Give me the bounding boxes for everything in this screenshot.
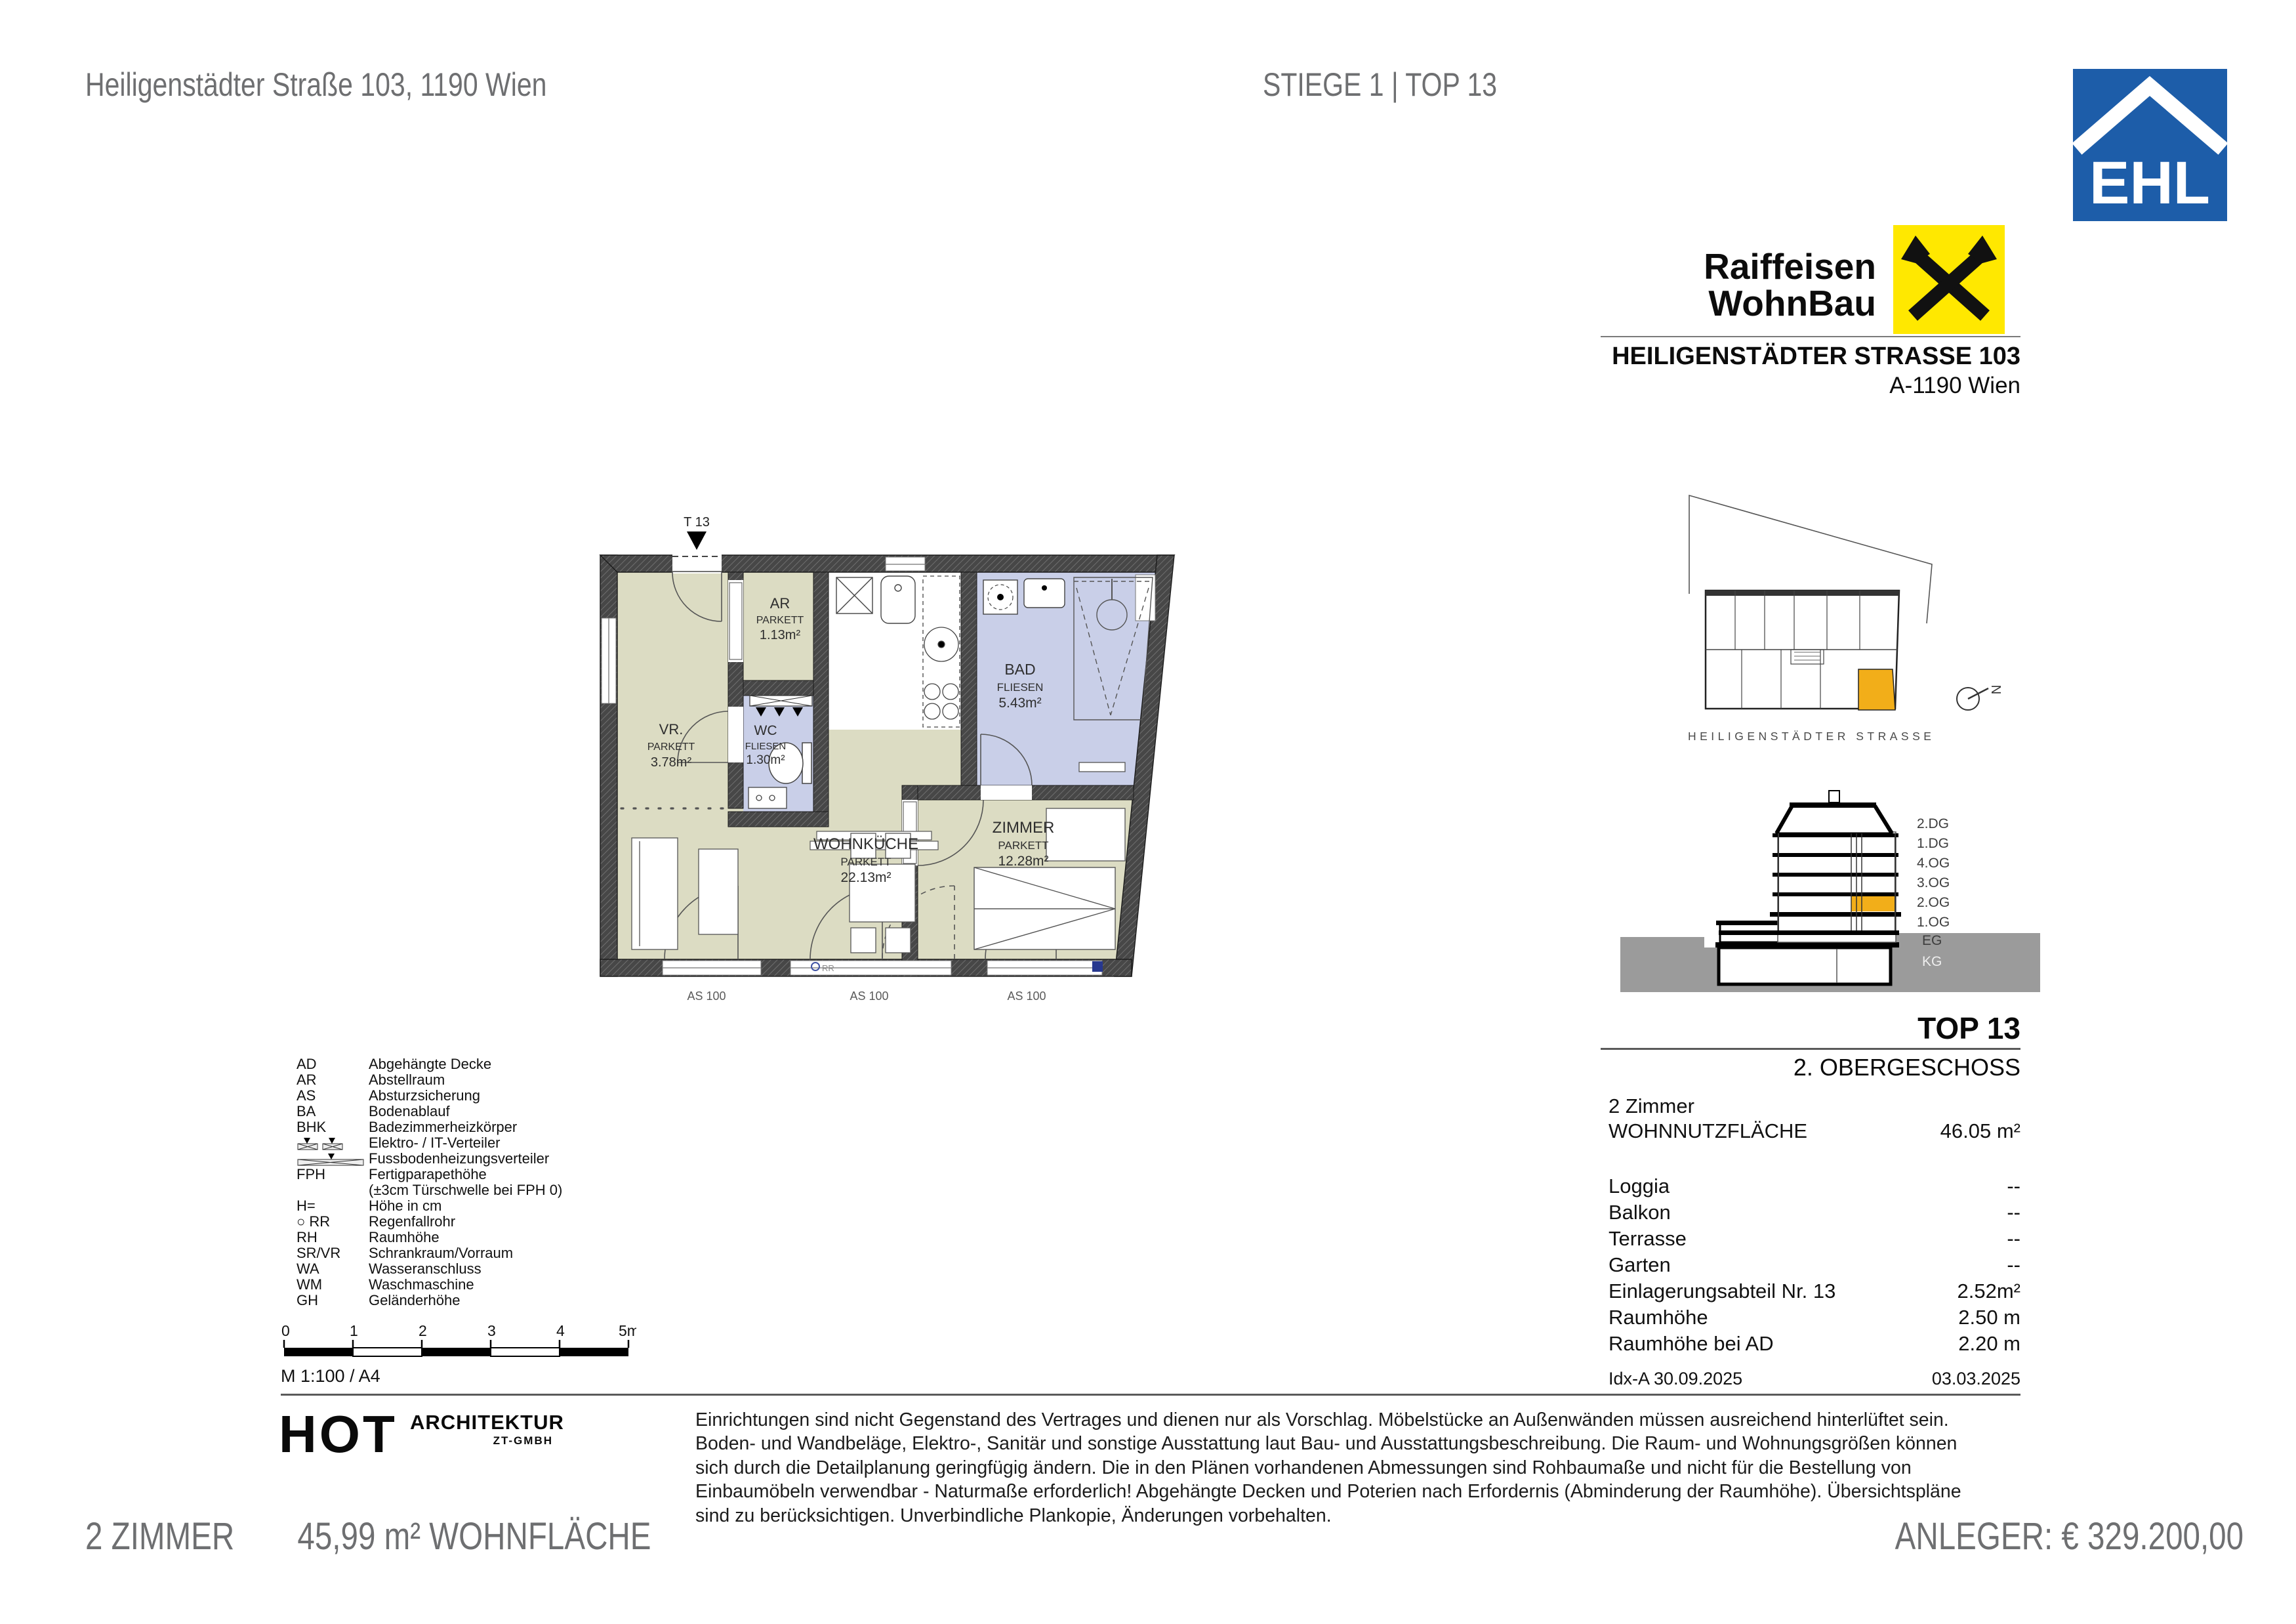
row-value: 2.50 m [1958, 1306, 2020, 1329]
entrance-arrow-icon [687, 531, 707, 550]
legend-desc: Schrankraum/Vorraum [369, 1245, 513, 1261]
site-plan: N HEILIGENSTÄDTER STRASSE [1670, 482, 2037, 745]
footer-summary: 2 ZIMMER 45,99 m² WOHNFLÄCHE [85, 1514, 651, 1558]
raiffeisen-line2: WohnBau [1673, 285, 1876, 322]
legend-abbr: GH [297, 1293, 369, 1308]
legend: ADAbgehängte Decke ARAbstellraum ASAbstu… [297, 1056, 562, 1308]
as-label: AS 100 [687, 989, 726, 1003]
floor-label: KG [1922, 954, 1942, 969]
legend-desc: Fertigparapethöhe [369, 1167, 487, 1182]
plan-date: 03.03.2025 [1932, 1369, 2020, 1389]
legend-abbr: RH [297, 1230, 369, 1245]
legend-desc: Abstellraum [369, 1072, 445, 1088]
legend-desc: Bodenablauf [369, 1104, 450, 1119]
project-city: A-1190 Wien [1601, 373, 2020, 399]
footer-rule [281, 1394, 2020, 1396]
row-value: 2.20 m [1958, 1332, 2020, 1356]
floor-heating-distributor-symbol-icon [297, 1151, 369, 1167]
bathroom-radiator-icon [1079, 762, 1125, 772]
legend-desc: Raumhöhe [369, 1230, 440, 1245]
legend-abbr: AR [297, 1072, 369, 1088]
bad-door-opening [981, 785, 1032, 800]
raiffeisen-line1: Raiffeisen [1673, 248, 1876, 285]
unit-divider [1601, 1048, 2020, 1050]
floor-label: 4.OG [1917, 856, 1950, 871]
floor-label: 2.OG [1917, 895, 1950, 910]
unit-area-label: WOHNNUTZFLÄCHE [1609, 1119, 1807, 1142]
row-label: Loggia [1609, 1175, 1670, 1197]
raiffeisen-block: Raiffeisen WohnBau HEILIGENSTÄDTER STRAS… [1601, 223, 2020, 433]
project-name: HEILIGENSTÄDTER STRASSE 103 [1601, 343, 2020, 371]
row-value: -- [2007, 1175, 2020, 1198]
info-row: 2.20 m Raumhöhe bei AD [1609, 1332, 2020, 1356]
highlighted-unit [1858, 669, 1895, 710]
svg-text:N: N [1988, 685, 2003, 694]
row-label: Einlagerungsabteil Nr. 13 [1609, 1280, 1835, 1302]
legend-desc: (±3cm Türschwelle bei FPH 0) [369, 1182, 562, 1198]
wall-bad-left [961, 572, 977, 800]
legend-desc: Wasseranschluss [369, 1261, 482, 1277]
info-row: -- Terrasse [1609, 1227, 2020, 1251]
window-sill-labels: AS 100 AS 100 AS 100 [687, 989, 1046, 1003]
legend-desc: Abgehängte Decke [369, 1056, 491, 1072]
architect-sub2: ZT-GMBH [410, 1434, 553, 1447]
unit-rooms-count: 2 Zimmer [1609, 1094, 1694, 1118]
floor-label: 1.OG [1917, 915, 1950, 930]
legend-row: ADAbgehängte Decke [297, 1056, 562, 1072]
legend-row: BABodenablauf [297, 1104, 562, 1119]
legend-abbr: SR/VR [297, 1245, 369, 1261]
room-material: FLIESEN [745, 741, 787, 752]
legend-abbr: BA [297, 1104, 369, 1119]
legend-desc: Absturzsicherung [369, 1088, 480, 1104]
street-label: HEILIGENSTÄDTER STRASSE [1688, 730, 1935, 743]
window-bottom-3 [987, 961, 1102, 975]
legend-row: Elektro- / IT-Verteiler [297, 1135, 562, 1151]
legend-abbr: FPH [297, 1167, 369, 1182]
legend-row: GHGeländerhöhe [297, 1293, 562, 1308]
basement [1719, 947, 1891, 984]
architect-sub1: ARCHITEKTUR [410, 1411, 564, 1434]
info-row: -- Garten [1609, 1253, 2020, 1277]
legend-row: Fussbodenheizungsverteiler [297, 1151, 562, 1167]
room-material: PARKETT [840, 856, 891, 868]
legend-row: BHKBadezimmerheizkörper [297, 1119, 562, 1135]
floor-label: EG [1922, 933, 1942, 948]
room-name: VR. [659, 721, 684, 738]
window-left [602, 618, 616, 703]
legend-desc: Waschmaschine [369, 1277, 474, 1293]
footer-area: 45,99 m² WOHNFLÄCHE [297, 1515, 651, 1558]
info-row: 2.50 m Raumhöhe [1609, 1306, 2020, 1329]
unit-area-value: 46.05 m² [1940, 1119, 2020, 1143]
legend-abbr: WA [297, 1261, 369, 1277]
unit-floor-label: 2. OBERGESCHOSS [1601, 1054, 2020, 1081]
room-name: ZIMMER [993, 819, 1055, 837]
legend-desc: Badezimmerheizkörper [369, 1119, 517, 1135]
legend-row: RHRaumhöhe [297, 1230, 562, 1245]
room-area: 1.30m² [746, 753, 785, 767]
scale-tick: 2 [419, 1324, 427, 1339]
as-label: AS 100 [1007, 989, 1046, 1003]
kitchen-counter [923, 576, 960, 727]
room-material: PARKETT [647, 741, 695, 753]
scale-bar: 0 1 2 3 4 5m [279, 1324, 636, 1364]
room-name: WOHNKÜCHE [813, 835, 918, 853]
architect-logo: HOT ARCHITEKTUR ZT-GMBH [279, 1404, 581, 1476]
legend-row: H=Höhe in cm [297, 1198, 562, 1214]
ar-door-leaf [729, 583, 742, 659]
legend-desc: Elektro- / IT-Verteiler [369, 1135, 501, 1151]
legend-row: ○ RRRegenfallrohr [297, 1214, 562, 1230]
floor-label: 1.DG [1917, 836, 1949, 851]
legend-desc: Geländerhöhe [369, 1293, 460, 1308]
room-material: PARKETT [998, 839, 1048, 852]
info-row: 2.52m² Einlagerungsabteil Nr. 13 [1609, 1280, 2020, 1303]
legend-abbr: AD [297, 1056, 369, 1072]
wc-door-opening [728, 707, 743, 762]
scale-tick: 1 [350, 1324, 358, 1339]
scale-caption: M 1:100 / A4 [281, 1366, 380, 1386]
room-material: FLIESEN [997, 681, 1044, 694]
info-row: -- Loggia [1609, 1175, 2020, 1198]
room-name: AR [770, 595, 790, 612]
scale-tick: 0 [281, 1324, 290, 1339]
legend-row: SR/VRSchrankraum/Vorraum [297, 1245, 562, 1261]
row-value: 2.52m² [1958, 1280, 2020, 1303]
bad-sink-icon [1024, 579, 1065, 608]
window-top-kitchen [886, 557, 925, 571]
electric-marker [1092, 961, 1103, 972]
row-label: Garten [1609, 1253, 1671, 1276]
raiffeisen-wordmark: Raiffeisen WohnBau [1673, 248, 1876, 322]
floor-label: 2.DG [1917, 816, 1949, 831]
row-label: Balkon [1609, 1201, 1671, 1224]
floor-plan: T 13 [594, 507, 1197, 1038]
page-title: Heiligenstädter Straße 103, 1190 Wien [85, 66, 546, 104]
legend-row: ARAbstellraum [297, 1072, 562, 1088]
unit-area-row: 46.05 m² WOHNNUTZFLÄCHE [1609, 1119, 2020, 1143]
scale-tick: 3 [487, 1324, 496, 1339]
disclaimer-text: Einrichtungen sind nicht Gegenstand des … [695, 1408, 1984, 1528]
room-area: 5.43m² [998, 696, 1041, 711]
north-arrow-icon: N [1957, 685, 2003, 710]
scale-tick: 5m [619, 1324, 636, 1339]
wall-wc-bottom [728, 812, 829, 827]
floor-label: 3.OG [1917, 875, 1950, 890]
legend-abbr: ○ RR [297, 1214, 369, 1230]
row-label: Raumhöhe bei AD [1609, 1332, 1774, 1355]
section-highlight [1851, 894, 1896, 911]
legend-row: WAWasseranschluss [297, 1261, 562, 1277]
brand-divider [1601, 336, 2020, 337]
ehl-logo-text: EHL [2089, 150, 2210, 217]
room-area: 1.13m² [760, 628, 801, 642]
tower [1778, 832, 1896, 942]
row-value: -- [2007, 1201, 2020, 1224]
entrance-opening [672, 554, 722, 573]
footer-price: ANLEGER: € 329.200,00 [1895, 1514, 2244, 1558]
kitchen-appliance-icon [836, 577, 872, 614]
window-bottom-1 [663, 961, 761, 975]
room-name: BAD [1004, 661, 1035, 678]
raiffeisen-gable-cross-icon [1893, 225, 2005, 334]
info-row: -- Balkon [1609, 1201, 2020, 1224]
legend-abbr: WM [297, 1277, 369, 1293]
row-label: Raumhöhe [1609, 1306, 1708, 1329]
legend-row: (±3cm Türschwelle bei FPH 0) [297, 1182, 562, 1198]
wall-wc-kitchen [813, 572, 829, 827]
building-section: 2.DG 1.DG 4.OG 3.OG 2.OG 1.OG EG KG [1620, 787, 2040, 1004]
unit-top-label: TOP 13 [1601, 1010, 2020, 1046]
washing-machine-icon [983, 580, 1017, 614]
room-area: 12.28m² [998, 854, 1048, 869]
legend-desc: Höhe in cm [369, 1198, 441, 1214]
footer-rooms: 2 ZIMMER [85, 1515, 234, 1558]
legend-abbr: AS [297, 1088, 369, 1104]
legend-desc: Regenfallrohr [369, 1214, 455, 1230]
entrance-label: T 13 [684, 515, 710, 530]
legend-row: WMWaschmaschine [297, 1277, 562, 1293]
room-area: 22.13m² [840, 870, 891, 885]
scale-tick: 4 [556, 1324, 565, 1339]
legend-abbr: BHK [297, 1119, 369, 1135]
room-area: 3.78m² [651, 755, 692, 770]
row-value: -- [2007, 1253, 2020, 1277]
as-label: AS 100 [850, 989, 888, 1003]
row-value: -- [2007, 1227, 2020, 1251]
legend-abbr: H= [297, 1198, 369, 1214]
wardrobe [1046, 808, 1125, 861]
electro-distributor-symbol-icon [297, 1135, 369, 1151]
legend-row: FPHFertigparapethöhe [297, 1167, 562, 1182]
legend-desc: Fussbodenheizungsverteiler [369, 1151, 549, 1167]
svg-text:RR: RR [822, 963, 834, 973]
row-label: Terrasse [1609, 1227, 1687, 1250]
ehl-logo: EHL [2073, 69, 2227, 221]
room-material: PARKETT [756, 615, 804, 626]
index-date-row: 03.03.2025 Idx-A 30.09.2025 [1609, 1369, 2020, 1389]
index-label: Idx-A 30.09.2025 [1609, 1369, 1742, 1388]
bed [974, 867, 1115, 949]
room-name: WC [754, 723, 777, 738]
architect-name: HOT [279, 1404, 398, 1465]
unit-header: STIEGE 1 | TOP 13 [1263, 66, 1497, 104]
kitchen-sink-icon [881, 576, 915, 623]
legend-row: ASAbsturzsicherung [297, 1088, 562, 1104]
wc-sink-icon [748, 787, 787, 808]
